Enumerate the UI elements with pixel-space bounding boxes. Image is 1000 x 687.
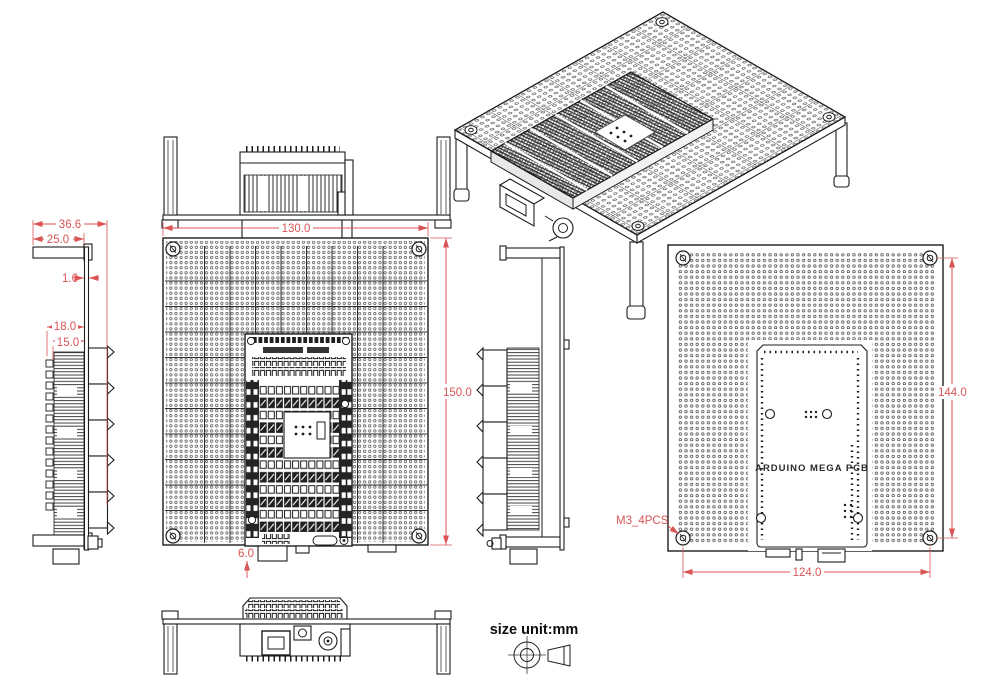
- geometry: [33, 244, 114, 564]
- cad-drawing: 36.6 25.0 1.6 18.0 15.0: [0, 0, 1000, 687]
- top-leg: [33, 247, 85, 258]
- right-side-view: [477, 246, 569, 564]
- bottom-leg: [505, 537, 561, 547]
- plate-edge: [85, 247, 89, 550]
- dim-shield-depth: 18.0: [54, 321, 76, 333]
- bottom-view: ARDUINO MEGA PCB 144.0 124.0 M3_4PCS: [616, 245, 972, 579]
- arduino-front: [240, 624, 350, 659]
- shield-profile: [240, 149, 353, 215]
- dim-mount-span-width: 124.0: [793, 567, 822, 579]
- pin-stack: [54, 352, 84, 535]
- third-angle-projection-icon: [508, 636, 570, 674]
- bottom-leg: [33, 535, 85, 546]
- terminal-blocks-right: [89, 346, 115, 534]
- dim-total-depth: 36.6: [59, 219, 81, 231]
- iso-power-jack: [545, 216, 573, 241]
- pcb-silkscreen-text: ARDUINO MEGA PCB: [755, 463, 869, 474]
- dim-leg-length: 25.0: [47, 234, 69, 246]
- usb-b-port: [262, 631, 290, 655]
- terminal-bumps: [46, 360, 53, 510]
- shield-center-area: [284, 412, 330, 458]
- reset-button: [294, 626, 311, 640]
- usb-nub: [510, 549, 537, 564]
- plate-edge: [560, 247, 564, 550]
- dim-plate-thickness: 1.6: [62, 273, 78, 285]
- drawing-sheet: 36.6 25.0 1.6 18.0 15.0: [0, 0, 1000, 687]
- usb-connector: [258, 546, 287, 561]
- jack-nub: [88, 536, 98, 549]
- unit-note: size unit:mm: [490, 622, 579, 674]
- shield-footprint: [245, 334, 352, 546]
- silkscreen-smudge: [263, 347, 303, 353]
- plate-edge: [163, 215, 450, 220]
- size-unit-label: size unit:mm: [490, 622, 579, 638]
- usb-connector: [818, 549, 845, 562]
- top-view: 130.0 150.0 6.0: [163, 222, 474, 578]
- dim-usb-offset: 6.0: [238, 548, 254, 560]
- dim-board-width: 130.0: [282, 223, 311, 235]
- dim-terminal-depth: 15.0: [57, 337, 79, 349]
- dim-mount-span-height: 144.0: [938, 387, 967, 399]
- top-leg: [505, 248, 561, 258]
- pin-stack: [507, 348, 539, 530]
- mount-hole-note: M3_4PCS: [616, 515, 669, 527]
- terminal-blocks-left: [477, 348, 507, 536]
- left-side-view: 36.6 25.0 1.6 18.0 15.0: [33, 218, 114, 564]
- plate-edge: [163, 619, 450, 624]
- dim-board-height: 150.0: [443, 387, 472, 399]
- left-terminal-strip: [246, 380, 259, 538]
- edge-connectors: [258, 545, 396, 561]
- usb-nub: [53, 549, 79, 564]
- front-elevation-bottom: [162, 598, 451, 674]
